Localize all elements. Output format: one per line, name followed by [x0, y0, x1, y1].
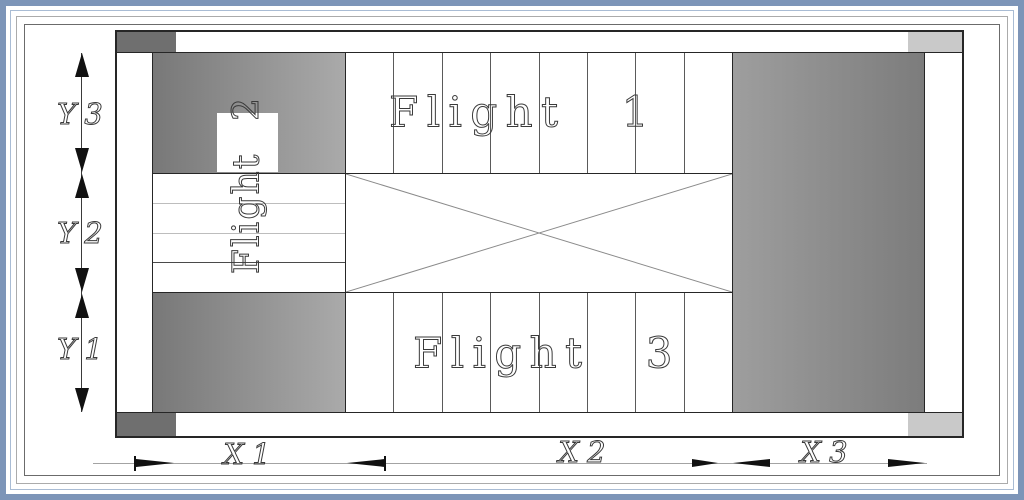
stair-plan-canvas: Flight 1 Flight 2 Flight 3 Y3 Y2 Y1 X1 X…: [0, 0, 1024, 500]
wall-block-bottom-left: [115, 413, 176, 437]
y-arrow-y2-bottom-icon: [75, 268, 89, 292]
y-arrow-y1-top-icon: [75, 294, 89, 318]
tread-cell: [346, 293, 394, 413]
stair-well-cross: [345, 173, 733, 293]
dim-label-y2: Y2: [57, 216, 111, 250]
wall-line-right-outer: [962, 30, 964, 438]
y-arrow-y3-bottom-icon: [75, 148, 89, 172]
y-arrow-y2-top-icon: [75, 174, 89, 198]
wall-line-top-inner: [115, 52, 963, 53]
wall-line-left-outer: [115, 30, 117, 438]
flight1-label: Flight 1: [389, 88, 657, 137]
dim-label-y1: Y1: [57, 332, 111, 366]
x-tick-mid-icon: [384, 456, 386, 471]
tread-cell: [685, 53, 732, 173]
wall-block-bottom-right: [908, 413, 963, 437]
dim-label-x1: X1: [223, 437, 278, 471]
x-arrow-x3-right-icon: [888, 459, 925, 467]
dim-label-x3: X3: [800, 435, 855, 469]
tread-cell: [346, 53, 394, 173]
wall-block-top-left: [115, 30, 176, 53]
wall-line-top-outer: [115, 30, 963, 32]
well-diagonals-icon: [346, 174, 732, 292]
x-arrow-x3-left-icon: [733, 459, 770, 467]
wall-line-right-inner: [924, 52, 925, 413]
wall-line-left-inner: [152, 52, 153, 413]
landing-slab-bottom-left: [153, 293, 345, 413]
y-arrow-bottom-icon: [75, 388, 89, 412]
dim-label-y3: Y3: [57, 97, 111, 131]
x-arrow-x1-left-icon: [136, 459, 174, 467]
y-arrow-top-icon: [75, 53, 89, 77]
wall-line-bottom-inner: [115, 412, 963, 413]
dim-label-x2: X2: [558, 435, 613, 469]
wall-block-top-right: [908, 30, 963, 53]
landing-slab-right: [733, 53, 925, 413]
x-arrow-x1-right-icon: [347, 459, 385, 467]
x-arrow-x2-right-icon: [692, 459, 718, 467]
flight3-label: Flight 3: [413, 329, 681, 378]
flight2-label: Flight 2: [227, 96, 268, 274]
tread-cell: [685, 293, 732, 413]
